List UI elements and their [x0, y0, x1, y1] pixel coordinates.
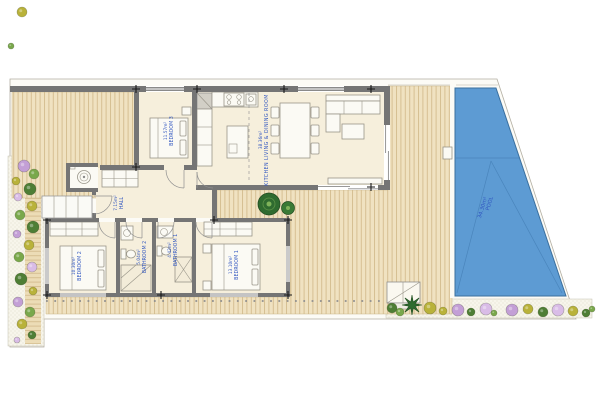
plant-highlight — [29, 264, 32, 267]
plant-icon — [282, 202, 295, 215]
room-area: 4.42m² — [167, 242, 173, 258]
plant-highlight — [15, 299, 18, 302]
plant-highlight — [30, 224, 34, 228]
room-area: 38.36m² — [258, 131, 264, 149]
plant-icon — [552, 304, 564, 316]
kitchen-counter-left — [197, 109, 212, 166]
room-area: 7.15m² — [113, 195, 119, 211]
plant-highlight — [9, 44, 11, 46]
bed-bedroom-2 — [60, 246, 106, 290]
plant-icon — [387, 303, 397, 313]
plant-icon — [452, 304, 464, 316]
room-name: BATHROOM 2 — [142, 241, 148, 273]
floor-plan-drawing: 11.57m² BEDROOM 3 38.36m² KITCHEN LIVING… — [0, 0, 600, 400]
pillow — [180, 121, 186, 136]
plant-icon — [14, 337, 20, 343]
plant-icon — [523, 304, 533, 314]
plant-icon — [29, 287, 37, 295]
room-area: 13.10m² — [228, 256, 234, 274]
plant-icon — [506, 304, 518, 316]
plant-icon — [27, 221, 39, 233]
window — [146, 86, 184, 92]
pillow — [98, 250, 104, 267]
plant-icon — [18, 160, 30, 172]
chair — [311, 125, 319, 136]
chair — [271, 107, 279, 118]
sofa-chaise — [326, 114, 340, 132]
plant-icon — [424, 302, 436, 314]
plant-highlight — [427, 305, 431, 309]
plant-highlight — [15, 338, 17, 340]
plant-icon — [589, 306, 595, 312]
dining-table — [280, 103, 310, 158]
bed-bedroom-3 — [150, 118, 188, 158]
sliding-door — [384, 125, 390, 180]
plant-highlight — [21, 163, 25, 167]
plant-highlight — [590, 307, 592, 309]
toilet-icon — [121, 249, 136, 259]
plant-icon — [480, 303, 492, 315]
plant-icon — [29, 169, 39, 179]
plant-highlight — [16, 195, 18, 197]
plant-icon — [24, 183, 36, 195]
plant-highlight — [483, 306, 487, 310]
pool — [443, 84, 566, 298]
plant-highlight — [30, 333, 32, 335]
window — [60, 293, 106, 297]
plant-highlight — [455, 307, 459, 311]
floor-plan-page: 11.57m² BEDROOM 3 38.36m² KITCHEN LIVING… — [0, 0, 600, 400]
plant-highlight — [398, 310, 400, 312]
plant-icon — [14, 252, 24, 262]
room-name: BEDROOM 2 — [77, 251, 83, 281]
plant-highlight — [15, 232, 17, 234]
window — [286, 246, 290, 282]
plant-icon — [582, 309, 590, 317]
plant-highlight — [555, 307, 559, 311]
nightstand — [182, 107, 191, 115]
tv-bench — [328, 178, 382, 184]
coffee-table — [342, 124, 364, 139]
plant-highlight — [19, 9, 22, 12]
plant-highlight — [17, 212, 20, 215]
plant-icon — [17, 7, 27, 17]
plant-highlight — [540, 309, 543, 312]
kitchen-island — [227, 126, 248, 158]
wardrobe-bedroom-2 — [50, 222, 98, 236]
plant-highlight — [31, 171, 34, 174]
room-area: 5.04m² — [136, 249, 142, 265]
plant-highlight — [584, 311, 586, 313]
plant-highlight — [31, 289, 33, 291]
pillow — [252, 269, 258, 285]
plant-highlight — [492, 311, 494, 313]
chair — [271, 125, 279, 136]
window — [298, 86, 344, 92]
entrance-steps — [42, 196, 92, 218]
plant-highlight — [18, 276, 22, 280]
pillow — [98, 270, 104, 287]
room-area: 10.30m² — [71, 257, 77, 275]
plant-icon — [491, 310, 497, 316]
dining-set — [271, 103, 319, 158]
plant-icon — [15, 273, 27, 285]
plant-highlight — [441, 309, 443, 311]
chair — [271, 143, 279, 154]
plant-icon — [439, 307, 447, 315]
plant-icon — [27, 201, 37, 211]
plant-icon — [258, 193, 280, 215]
plant-icon — [24, 240, 34, 250]
window — [210, 293, 258, 297]
plant-icon — [12, 177, 20, 185]
plant-icon — [28, 331, 36, 339]
wardrobe-bedroom-1 — [204, 222, 252, 236]
plant-highlight — [389, 305, 392, 308]
plant-icon — [8, 43, 14, 49]
plant-highlight — [29, 203, 32, 206]
cooktop-icon — [224, 93, 244, 106]
plant-highlight — [27, 186, 31, 190]
plant-highlight — [16, 254, 19, 257]
plant-icon — [13, 230, 21, 238]
chair — [311, 143, 319, 154]
plant-icon — [14, 193, 22, 201]
plant-highlight — [27, 309, 30, 312]
plant-icon — [13, 297, 23, 307]
plant-icon — [27, 262, 37, 272]
plant-highlight — [26, 242, 29, 245]
pool-ladder — [443, 147, 452, 159]
plant-icon — [15, 210, 25, 220]
sink-icon — [246, 94, 256, 105]
plant-icon — [25, 307, 35, 317]
room-name: BATHROOM 1 — [173, 234, 179, 266]
room-name: BEDROOM 1 — [234, 250, 240, 280]
palm-icon — [402, 295, 422, 315]
room-name: BEDROOM 3 — [169, 116, 175, 146]
window — [45, 248, 49, 284]
plant-highlight — [570, 308, 573, 311]
nightstand — [203, 281, 211, 290]
plant-highlight — [525, 306, 528, 309]
hall-closet — [102, 170, 138, 187]
plant-highlight — [509, 307, 513, 311]
nightstand — [203, 244, 211, 253]
plant-icon — [396, 308, 404, 316]
room-name: KITCHEN LIVING & DINING ROOM — [264, 94, 270, 186]
pillow — [252, 249, 258, 265]
plant-icon — [467, 308, 475, 316]
room-name: HALL — [119, 197, 125, 210]
plant-highlight — [14, 179, 16, 181]
pillow — [180, 140, 186, 155]
chair — [311, 107, 319, 118]
plant-icon — [568, 306, 578, 316]
plant-icon — [17, 319, 27, 329]
plant-highlight — [19, 321, 22, 324]
room-area: 11.57m² — [163, 122, 169, 140]
plant-highlight — [469, 310, 471, 312]
plant-icon — [538, 307, 548, 317]
